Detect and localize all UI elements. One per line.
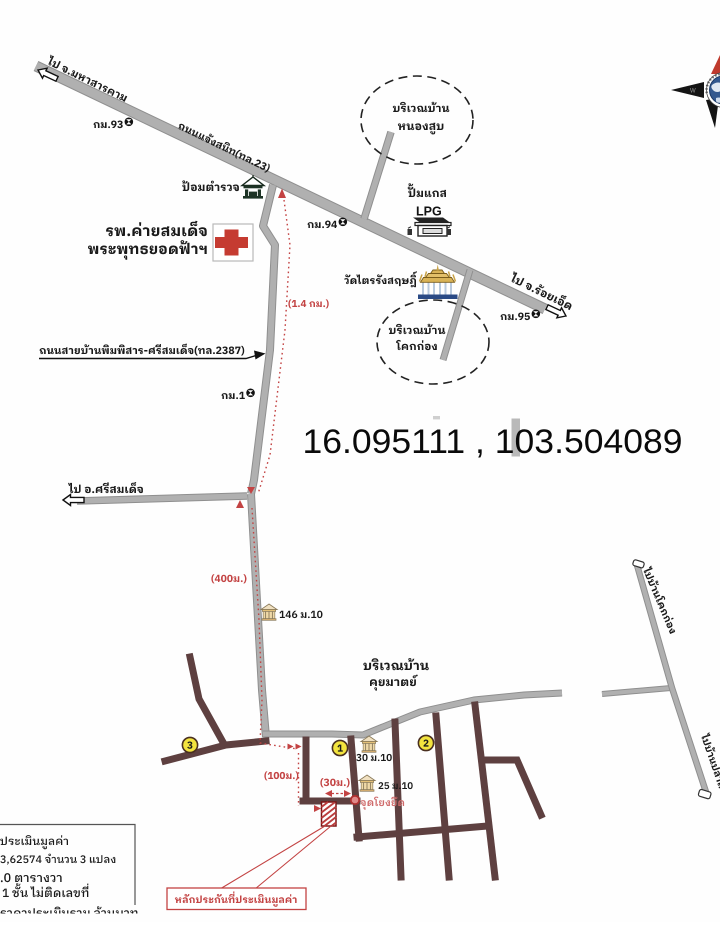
svg-text:LPG: LPG (416, 205, 442, 219)
svg-text:W: W (690, 89, 696, 95)
svg-text:16.095111 , 103.504089: 16.095111 , 103.504089 (303, 423, 683, 461)
